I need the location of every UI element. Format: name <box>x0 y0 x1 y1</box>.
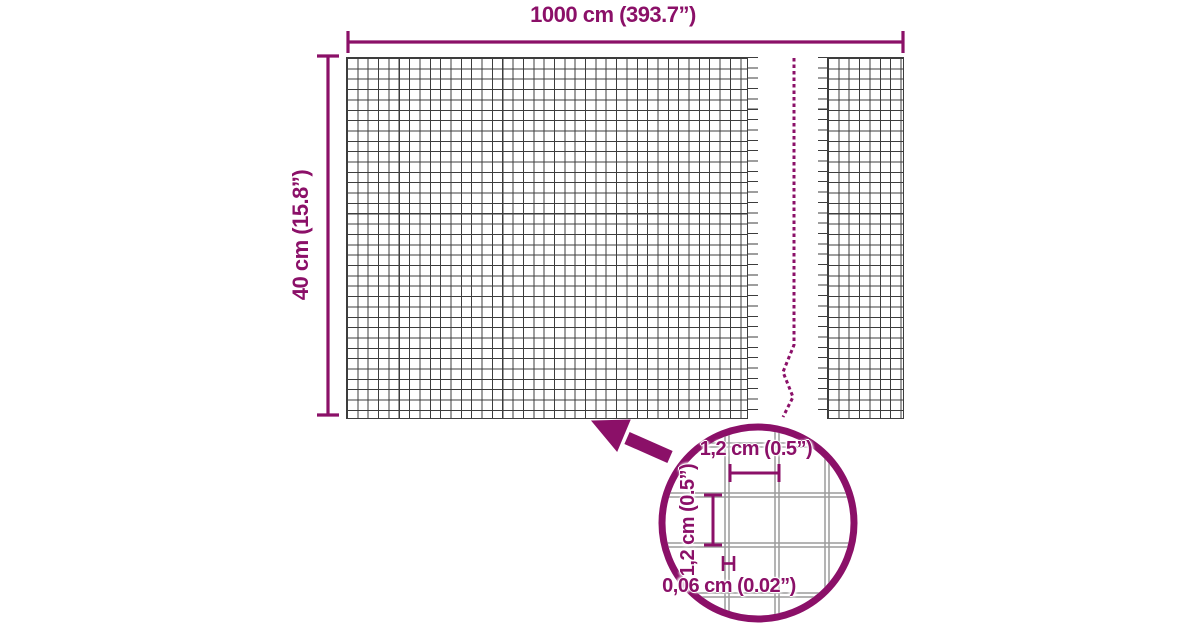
width-dimension-line <box>348 31 903 53</box>
detail-wire-thickness-label: 0,06 cm (0.02”) <box>662 576 796 596</box>
detail-mesh-width-label: 1,2 cm (0.5”) <box>700 439 812 459</box>
height-dimension-line <box>317 56 339 415</box>
detail-mesh-height-label: 1,2 cm (0.5”) <box>678 464 698 576</box>
width-dimension-label: 1000 cm (393.7”) <box>530 4 696 26</box>
annotation-overlay <box>0 0 1200 630</box>
zoom-callout-arrow <box>592 420 670 457</box>
mesh-break-dashed-line <box>783 58 794 417</box>
product-dimension-diagram: 1000 cm (393.7”) 40 cm (15.8”) 1,2 cm (0… <box>0 0 1200 630</box>
height-dimension-label: 40 cm (15.8”) <box>290 170 312 300</box>
